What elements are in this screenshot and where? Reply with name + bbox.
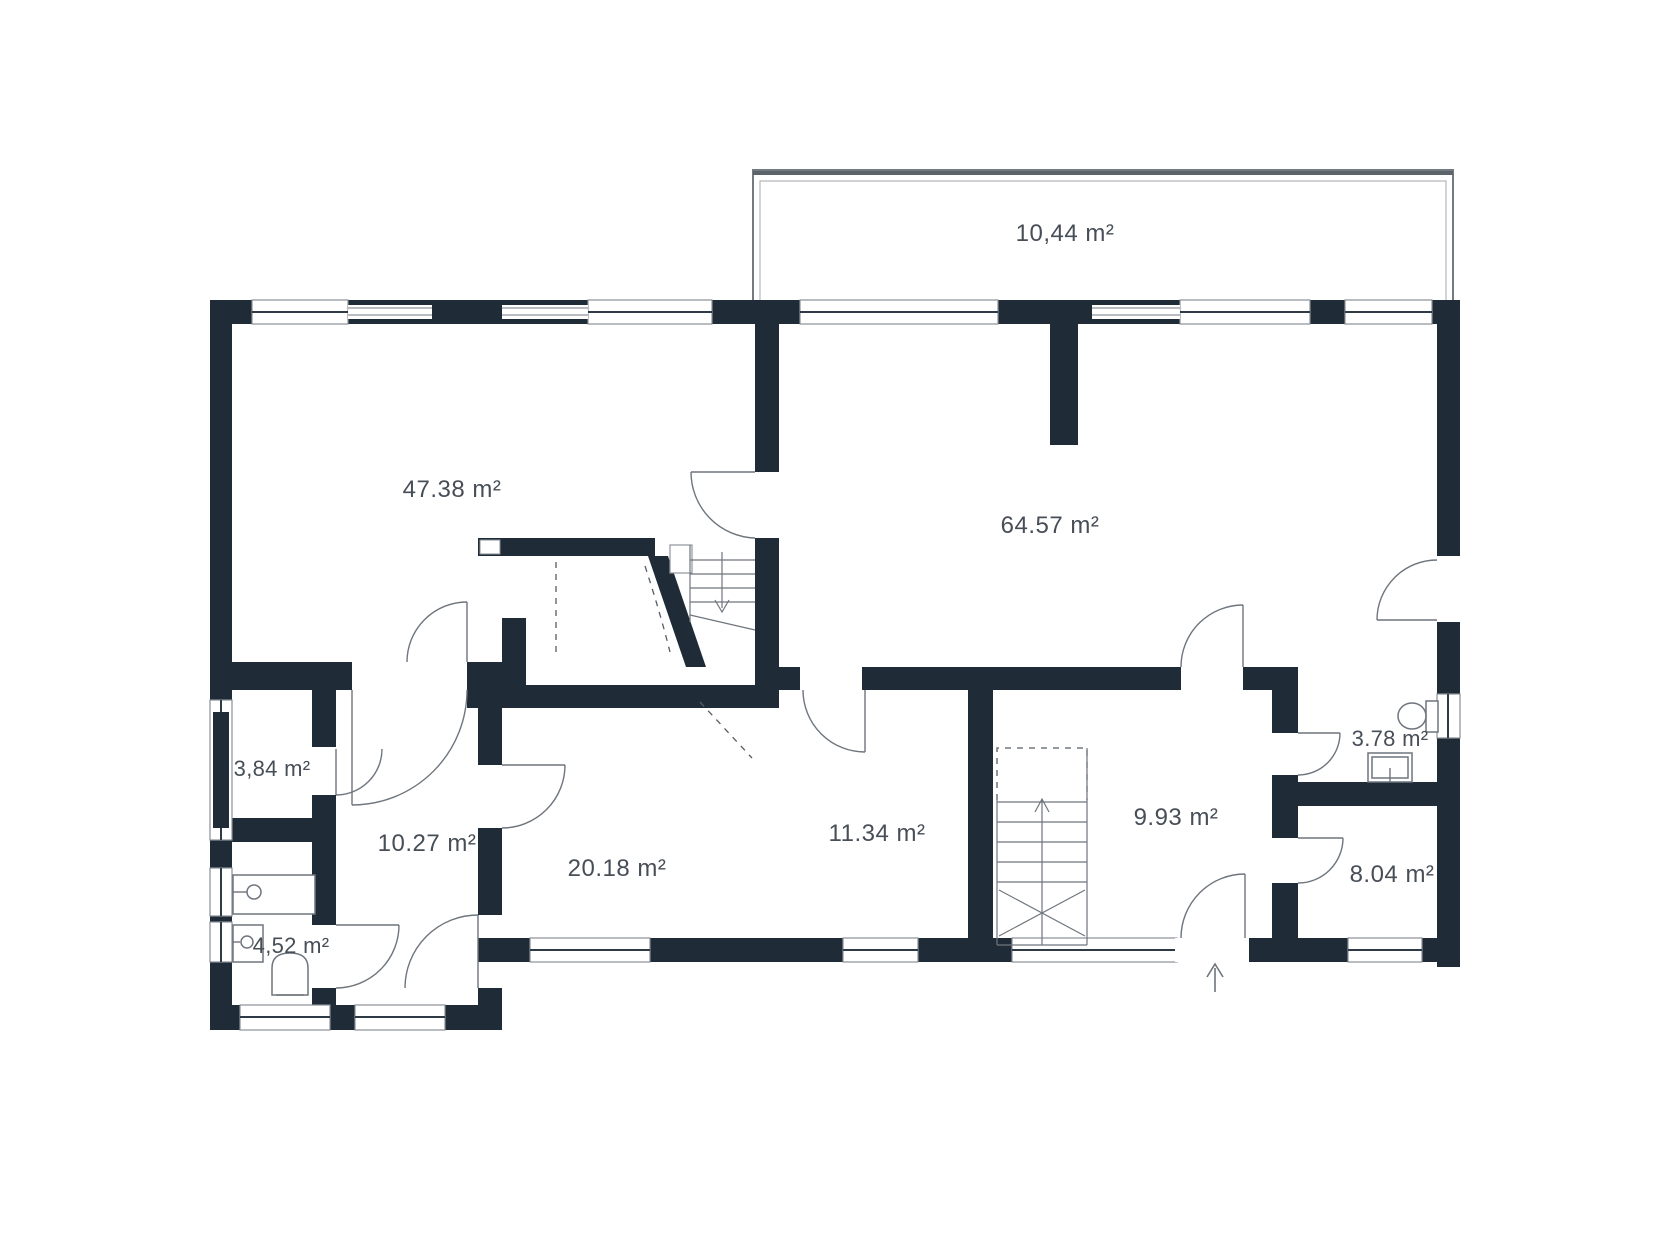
patio-door-opening	[1437, 556, 1460, 622]
window-icon	[530, 938, 650, 962]
window-icon	[1180, 300, 1310, 324]
window-icon	[800, 300, 998, 324]
window-icon	[1348, 938, 1422, 962]
door-wc	[1298, 733, 1340, 775]
wc-sink-icon	[1368, 753, 1412, 782]
room-label-entry-hall: 9.93 m²	[1134, 804, 1219, 831]
window-icon	[1012, 938, 1177, 962]
labels-layer: 10,44 m² 47.38 m² 64.57 m² 3,84 m² 10.27…	[234, 220, 1435, 958]
door-entry	[1181, 874, 1245, 938]
room-label-balcony: 10,44 m²	[1016, 220, 1115, 247]
window-icon	[588, 300, 712, 324]
stairs-up-icon	[997, 748, 1087, 945]
door-bathroom	[336, 925, 399, 988]
window-icon	[1437, 694, 1460, 738]
room-label-living-kitchen: 64.57 m²	[1001, 512, 1100, 539]
window-icon	[210, 922, 232, 962]
radiator-strip	[213, 712, 229, 828]
floor-plan: 10,44 m² 47.38 m² 64.57 m² 3,84 m² 10.27…	[0, 0, 1666, 1250]
window-icon	[843, 938, 918, 962]
room-label-storage: 3,84 m²	[234, 756, 311, 781]
door-rear-room	[1298, 838, 1343, 883]
window-icon	[1345, 300, 1432, 324]
window-icon	[355, 1005, 445, 1030]
floor-plan-svg: 10,44 m² 47.38 m² 64.57 m² 3,84 m² 10.27…	[0, 0, 1666, 1250]
door-closet	[407, 602, 467, 662]
door-middle-room	[803, 690, 865, 752]
door-living-to-kitchen	[691, 472, 755, 538]
door-kitchen-to-entry	[1181, 605, 1243, 667]
window-icon	[210, 868, 232, 916]
room-label-bedroom: 20.18 m²	[568, 855, 667, 882]
toilet-icon	[272, 953, 308, 995]
room-label-hallway: 10.27 m²	[378, 830, 477, 857]
room-label-middle-room: 11.34 m²	[829, 820, 926, 847]
door-bedroom-lower	[405, 915, 478, 988]
room-label-wc: 3.78 m²	[1352, 726, 1429, 751]
window-icon	[240, 1005, 330, 1030]
room-label-bathroom: 4,52 m²	[253, 933, 330, 958]
vanity-icon	[233, 875, 315, 914]
fixed-glazing-icon	[1092, 305, 1180, 319]
room-label-rear-room: 8.04 m²	[1350, 861, 1435, 888]
room-label-living-room: 47.38 m²	[403, 476, 502, 503]
entry-arrow-icon	[1207, 964, 1223, 992]
fixed-glazing-icon	[502, 305, 588, 319]
door-storage	[336, 749, 382, 795]
interior-walls	[210, 300, 1460, 1030]
fixed-glazing-icon	[348, 305, 432, 319]
door-patio	[1377, 560, 1437, 620]
entry-door-opening	[1175, 938, 1249, 962]
door-bedroom-upper	[502, 765, 565, 828]
window-icon	[252, 300, 348, 324]
door-hallway-to-living	[352, 690, 467, 805]
